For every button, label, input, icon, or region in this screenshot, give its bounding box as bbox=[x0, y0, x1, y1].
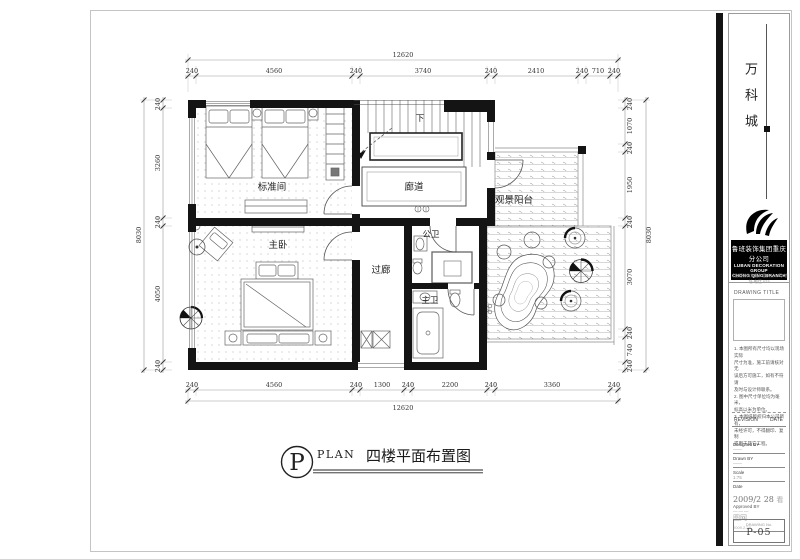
dim-text: 3070 bbox=[626, 269, 634, 286]
divider bbox=[732, 426, 786, 427]
date-field-label: Date bbox=[733, 484, 785, 489]
drawn-by-value: —— bbox=[733, 461, 785, 466]
note-line: 未经许可，不得翻印、复制 bbox=[734, 428, 786, 442]
label-passage: 过廊 bbox=[371, 264, 391, 276]
designed-by-value: —— bbox=[733, 447, 785, 452]
drawing-title-label: DRAWING TITLE bbox=[734, 290, 779, 296]
caption-title: 四楼平面布置图 bbox=[366, 448, 471, 465]
note-line: 误后方可施工，如有不符请 bbox=[734, 373, 786, 387]
label-stairs-down: 下 bbox=[416, 113, 425, 123]
dim-text: 240 bbox=[485, 67, 497, 75]
dim-text: 3740 bbox=[415, 67, 432, 75]
dim-text: 710 bbox=[592, 67, 604, 75]
revision-header: REVISION DATE bbox=[734, 417, 783, 423]
passage-cabinets bbox=[361, 331, 390, 348]
dim-text: 240 bbox=[186, 67, 198, 75]
label-corridor: 廊道 bbox=[404, 181, 424, 193]
sheet-number-box: DRAWING No. P-05 bbox=[733, 519, 785, 543]
dim-text: 1070 bbox=[626, 118, 634, 135]
dim-text: 4560 bbox=[266, 381, 283, 389]
label-master-bedroom: 主卧 bbox=[268, 239, 288, 251]
dim-text: 240 bbox=[350, 67, 362, 75]
dim-text: 740 bbox=[626, 344, 634, 356]
dim-text: 3260 bbox=[154, 155, 162, 172]
approved-by-value: ——— bbox=[733, 509, 785, 514]
dim-text: 240 bbox=[154, 98, 162, 110]
dim-total: 8030 bbox=[645, 227, 653, 244]
dim-text: 240 bbox=[626, 142, 634, 154]
company-name-cn: 鲁班装饰集团重庆分公司 bbox=[731, 243, 787, 263]
dim-text: 240 bbox=[154, 360, 162, 372]
label-standard-room: 标准间 bbox=[258, 181, 287, 193]
drawing-sheet: 标准间 廊道 主卧 过廊 公卫 主卫 观景阳台 下 240 4560 240 3… bbox=[0, 0, 800, 559]
dim-text: 2200 bbox=[442, 381, 459, 389]
drawing-title-box bbox=[733, 299, 785, 341]
dim-text: 1300 bbox=[374, 381, 391, 389]
palm-plant-icon bbox=[569, 260, 592, 283]
revision-label: REVISION bbox=[734, 417, 758, 423]
dim-text: 240 bbox=[626, 98, 634, 110]
project-rule bbox=[766, 24, 767, 199]
sheet-number: P-05 bbox=[734, 527, 784, 538]
note-line: 2. 图中尺寸单位均为毫米， bbox=[734, 394, 786, 408]
divider-dashed bbox=[732, 412, 786, 413]
dim-text: 240 bbox=[350, 381, 362, 389]
plan-caption: P PLAN 四楼平面布置图 bbox=[282, 447, 484, 478]
dim-text: 240 bbox=[154, 216, 162, 228]
note-line: 及时与设计师联系。 bbox=[734, 387, 786, 394]
caption-symbol: P bbox=[289, 450, 304, 476]
dim-text: 240 bbox=[626, 360, 634, 372]
date-text: 2009/2 28 bbox=[733, 495, 774, 504]
company-name-en1: LUBAN DECORATION GROUP bbox=[731, 263, 787, 273]
designed-by-field: Designed BY —— bbox=[733, 442, 785, 454]
label-master-bath: 主卫 bbox=[421, 295, 439, 305]
divider bbox=[729, 282, 789, 283]
dim-total: 12620 bbox=[393, 404, 414, 412]
title-block: 万科城 鲁班装饰集团重庆分公司 LUBAN DECORATION GROUP C… bbox=[728, 13, 790, 546]
label-balcony: 观景阳台 bbox=[495, 194, 533, 206]
dim-total: 12620 bbox=[393, 51, 414, 59]
titleblock-divider-bar bbox=[716, 13, 723, 546]
drawn-by-field: Drawn BY —— bbox=[733, 456, 785, 468]
project-rule-dot bbox=[764, 126, 770, 132]
scale-field: Scale 1:75 bbox=[733, 470, 785, 482]
dim-text: 240 bbox=[402, 381, 414, 389]
label-guest-bath: 公卫 bbox=[422, 229, 440, 239]
scale-value: 1:75 bbox=[733, 475, 785, 480]
dim-text: 240 bbox=[608, 381, 620, 389]
fan-icon bbox=[180, 307, 202, 329]
company-logo-icon bbox=[739, 204, 781, 243]
note-line: 尺寸为准，施工前请核对无 bbox=[734, 360, 786, 374]
caption-plan-word: PLAN bbox=[317, 448, 355, 461]
dim-text: 240 bbox=[626, 216, 634, 228]
dim-text: 4050 bbox=[154, 286, 162, 303]
dim-text: 240 bbox=[186, 381, 198, 389]
dim-text: 2410 bbox=[528, 67, 545, 75]
floor-plan-drawing: 标准间 廊道 主卧 过廊 公卫 主卫 观景阳台 下 240 4560 240 3… bbox=[0, 0, 800, 559]
dim-text: 3360 bbox=[544, 381, 561, 389]
dim-text: 240 bbox=[608, 67, 620, 75]
dim-text: 240 bbox=[626, 327, 634, 339]
dim-text: 1950 bbox=[626, 177, 634, 194]
note-line: 1. 本图所有尺寸均以现场实际 bbox=[734, 346, 786, 360]
dim-text: 240 bbox=[576, 67, 588, 75]
approved-by-field: Approved BY ——— bbox=[733, 504, 785, 514]
dim-text: 4560 bbox=[266, 67, 283, 75]
company-contact-line: 【鲁班装饰集团】重庆分公司 地址·电话 023 bbox=[729, 273, 789, 285]
dim-total: 8030 bbox=[135, 227, 143, 244]
date-label: DATE bbox=[770, 417, 783, 423]
notes-block: 1. 本图所有尺寸均以现场实际 尺寸为准，施工前请核对无 误后方可施工，如有不符… bbox=[734, 346, 786, 448]
dim-text: 240 bbox=[485, 381, 497, 389]
project-name: 万科城 bbox=[741, 62, 760, 140]
